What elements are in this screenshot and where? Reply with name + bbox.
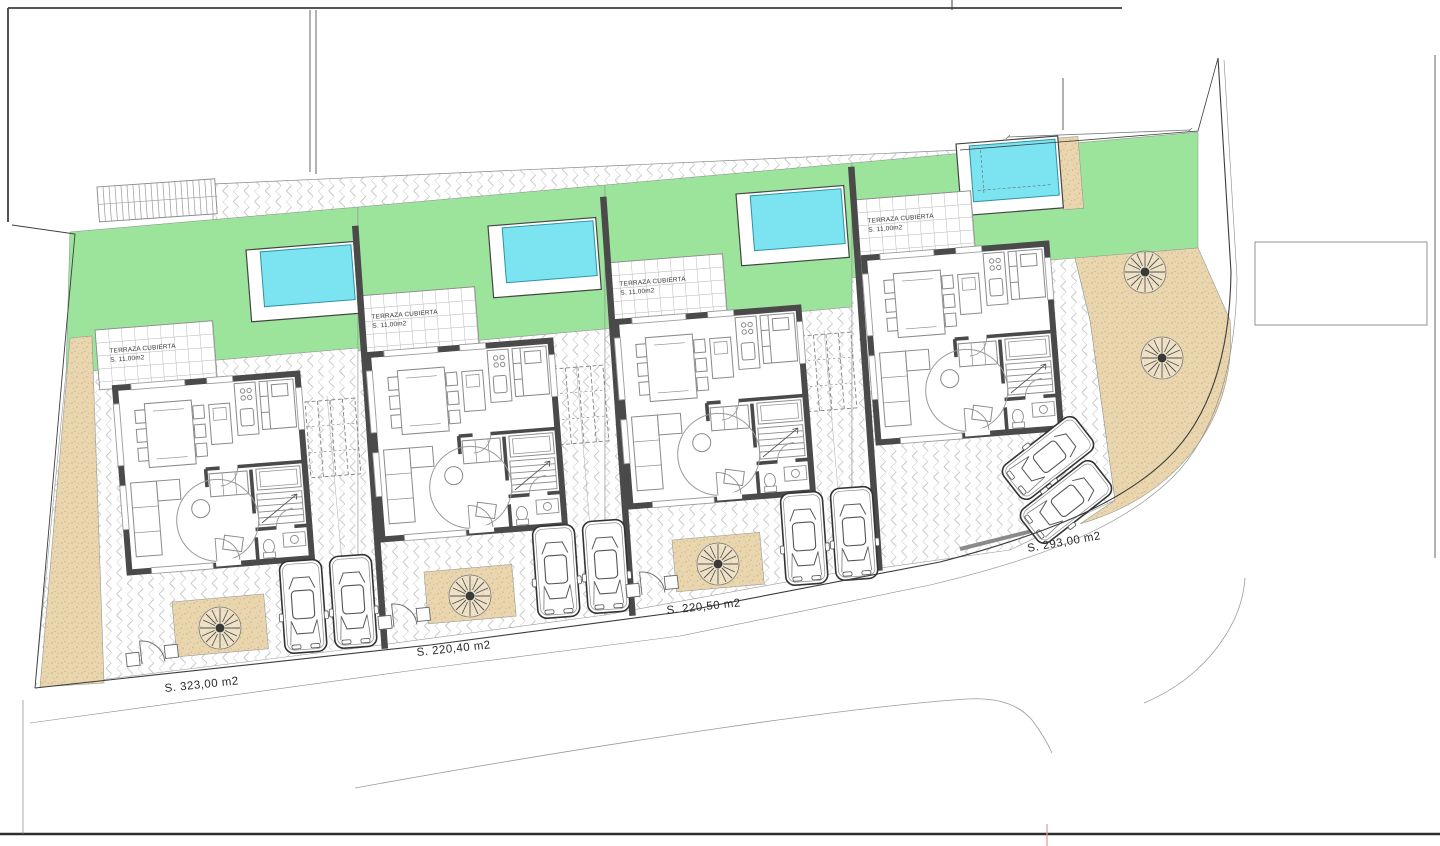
neighbor-building-top-left-outline bbox=[310, 10, 316, 174]
car-icon bbox=[777, 491, 832, 586]
tree-icon bbox=[697, 543, 739, 585]
villa-1-floorplan bbox=[112, 370, 315, 575]
road-curve-b bbox=[1144, 578, 1245, 703]
site-plan-drawing: TERRAZA CUBIERTA S. 11,00m2 TERRAZA CUBI… bbox=[0, 0, 1440, 846]
pool-2 bbox=[488, 218, 601, 298]
road-curve-a bbox=[355, 699, 1052, 788]
tree-icon bbox=[1141, 337, 1183, 379]
villa-2-floorplan bbox=[365, 337, 568, 542]
villa-3-floorplan bbox=[613, 304, 816, 509]
pool-4 bbox=[956, 136, 1063, 216]
exterior-stair bbox=[97, 179, 217, 222]
tree-icon bbox=[449, 575, 491, 617]
tree-icon bbox=[1124, 251, 1166, 293]
area-label-plot-2: S. 220,40 m2 bbox=[416, 639, 491, 659]
car-icon bbox=[326, 554, 381, 649]
neighbor-building-right-outline bbox=[1255, 242, 1427, 325]
site-plan-page: TERRAZA CUBIERTA S. 11,00m2 TERRAZA CUBI… bbox=[0, 0, 1440, 846]
pool-3 bbox=[736, 186, 849, 266]
car-icon bbox=[827, 486, 882, 581]
area-label-plot-1: S. 323,00 m2 bbox=[164, 675, 239, 695]
pool-1 bbox=[246, 242, 359, 322]
tree-icon bbox=[199, 607, 241, 649]
villa-4-floorplan bbox=[861, 240, 1064, 445]
car-icon bbox=[579, 519, 634, 614]
car-icon bbox=[276, 559, 331, 654]
car-icon bbox=[529, 524, 584, 619]
